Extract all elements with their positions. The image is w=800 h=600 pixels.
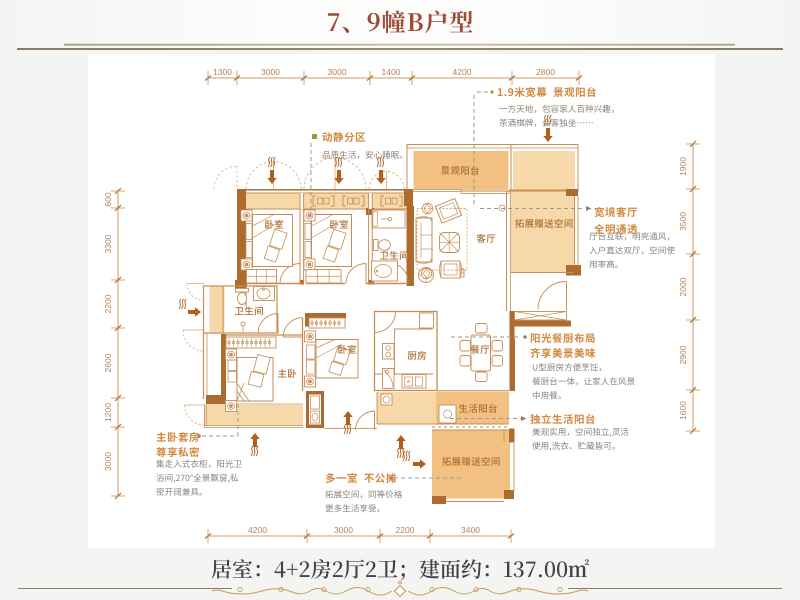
svg-text:2200: 2200 xyxy=(103,294,113,313)
svg-text:1600: 1600 xyxy=(678,401,688,420)
svg-text:3400: 3400 xyxy=(461,525,480,535)
svg-text:600: 600 xyxy=(103,192,113,206)
svg-text:2000: 2000 xyxy=(678,277,688,296)
svg-text:1400: 1400 xyxy=(382,67,401,77)
svg-text:3000: 3000 xyxy=(103,452,113,471)
svg-text:3500: 3500 xyxy=(678,212,688,231)
svg-text:4200: 4200 xyxy=(453,67,472,77)
svg-text:1300: 1300 xyxy=(213,67,232,77)
svg-text:1900: 1900 xyxy=(678,157,688,176)
svg-text:2200: 2200 xyxy=(396,525,415,535)
svg-text:1200: 1200 xyxy=(103,403,113,422)
svg-text:4200: 4200 xyxy=(248,525,267,535)
svg-text:2900: 2900 xyxy=(678,345,688,364)
svg-text:3300: 3300 xyxy=(103,234,113,253)
svg-text:2800: 2800 xyxy=(536,67,555,77)
svg-text:2600: 2600 xyxy=(103,353,113,372)
svg-text:3000: 3000 xyxy=(328,67,347,77)
svg-text:3000: 3000 xyxy=(261,67,280,77)
svg-text:3000: 3000 xyxy=(334,525,353,535)
